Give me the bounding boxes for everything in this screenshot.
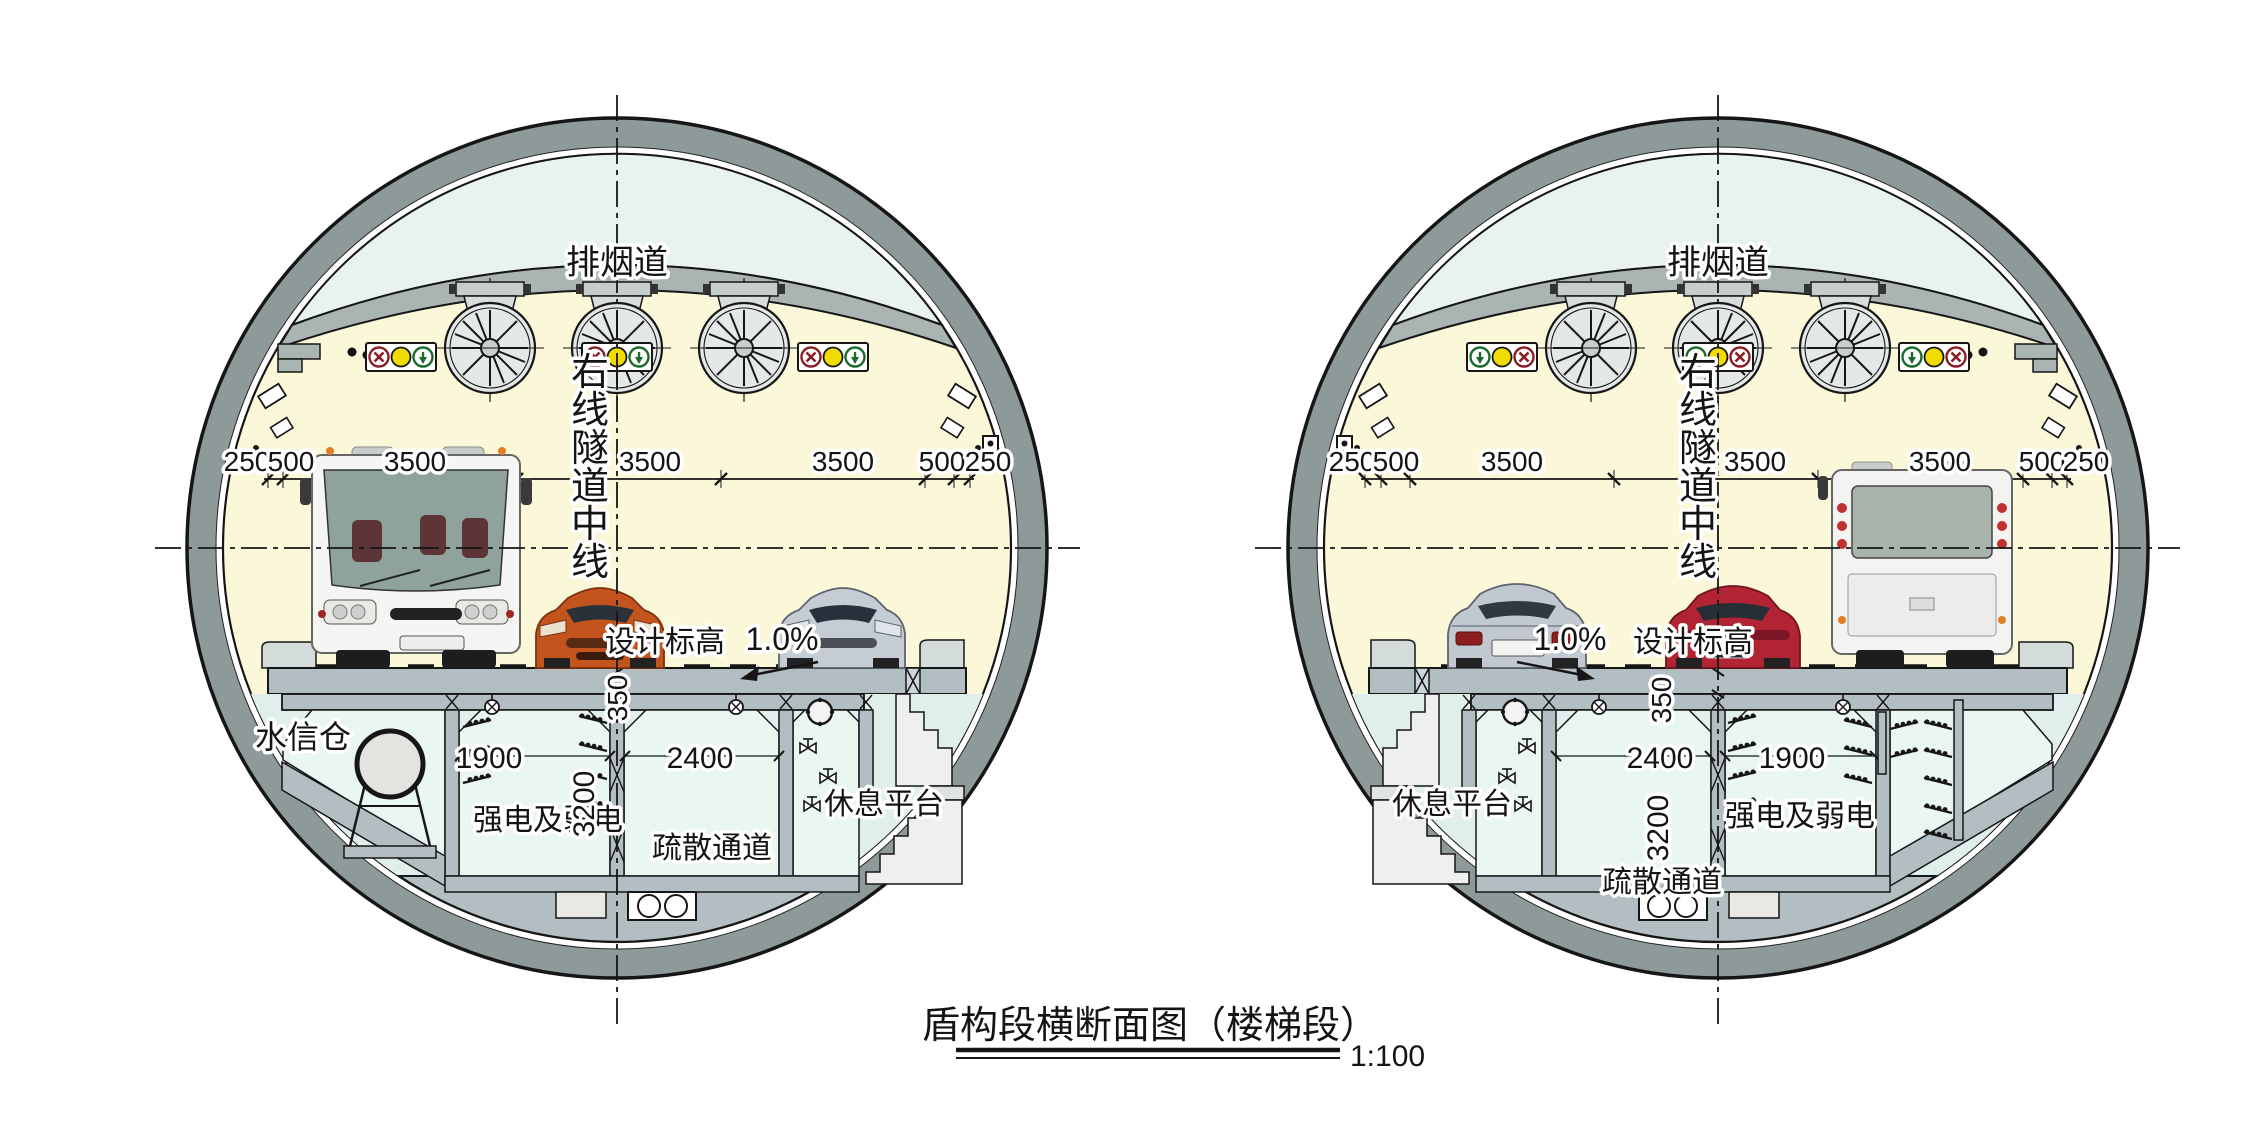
right-evac-channel-label: 疏散通道 (1602, 866, 1722, 899)
drawing-title: 盾构段横断面图（楼梯段） (922, 1005, 1378, 1047)
right-rest-platform-label: 休息平台 (1392, 788, 1512, 821)
left-water-bay-label: 水信仓 (255, 719, 351, 755)
right-dim-lane3: 3500 (1909, 446, 1971, 477)
drawing-scale: 1:100 (1350, 1040, 1425, 1073)
right-evac-height: 3200 (1642, 795, 1675, 862)
left-slope-label: 1.0% (746, 621, 819, 657)
left-deck-thickness: 350 (602, 675, 633, 722)
left-evac-height: 3200 (568, 771, 601, 838)
title-block: 盾构段横断面图（楼梯段） 1:100 (922, 1005, 1425, 1073)
left-dim-lane1: 3500 (384, 446, 446, 477)
left-evac-channel-label: 疏散通道 (652, 832, 772, 865)
left-dim-lane3: 3500 (812, 446, 874, 477)
right-power-bay-width: 1900 (1759, 742, 1826, 775)
left-dim-500l: 500 (268, 446, 315, 477)
left-evac-width: 2400 (667, 742, 734, 775)
left-dim-lane2: 3500 (619, 446, 681, 477)
left-rest-platform-label: 休息平台 (824, 788, 944, 821)
left-dim-250l: 250 (224, 446, 271, 477)
left-dim-500r: 500 (919, 446, 966, 477)
right-dim-lane2: 3500 (1724, 446, 1786, 477)
right-slope-label: 1.0% (1534, 621, 1607, 657)
bus-rear (1818, 462, 2012, 668)
left-smoke-duct-label: 排烟道 (566, 244, 668, 282)
right-deck-thickness: 350 (1646, 677, 1677, 724)
right-dim-lane1: 3500 (1481, 446, 1543, 477)
left-dim-250r: 250 (965, 446, 1012, 477)
right-smoke-duct-label: 排烟道 (1667, 244, 1769, 282)
left-design-elevation-label: 设计标高 (605, 626, 725, 659)
right-design-elevation-label: 设计标高 (1633, 626, 1753, 659)
drawing-page: 排烟道 右线隧道中线 250 500 3500 3500 3500 500 25… (0, 0, 2254, 1129)
tunnel-cross-section-drawing: 排烟道 右线隧道中线 250 500 3500 3500 3500 500 25… (0, 0, 2254, 1129)
left-centerline-label: 右线隧道中线 (571, 352, 609, 584)
right-centerline-label: 右线隧道中线 (1679, 352, 1717, 584)
right-power-bay-label: 强电及弱电 (1725, 800, 1875, 833)
right-dim-500l: 500 (1373, 446, 1420, 477)
right-dim-250r: 250 (2063, 446, 2110, 477)
right-dim-250l: 250 (1329, 446, 1376, 477)
bus-front (300, 447, 532, 668)
left-power-bay-width: 1900 (456, 742, 523, 775)
right-dim-500r: 500 (2019, 446, 2066, 477)
right-evac-width: 2400 (1627, 742, 1694, 775)
